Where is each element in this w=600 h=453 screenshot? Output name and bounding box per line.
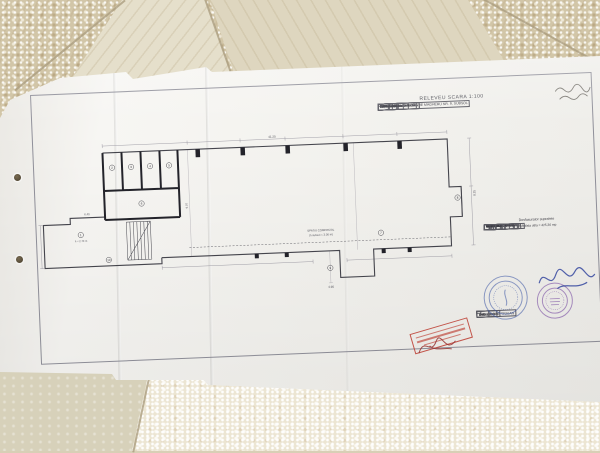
svg-text:9: 9 (329, 266, 331, 270)
page-title: RELEVEU SCARA 1:100 (419, 93, 483, 102)
data-label: Data (476, 310, 489, 318)
uat-value: Sectorul 1 (378, 103, 398, 111)
executant-name: ING. DOBRE TRAIAN (476, 309, 517, 318)
rect-stamp-red (409, 317, 472, 354)
plan-partitions (102, 150, 180, 220)
title-block-empty (476, 311, 481, 314)
cadastral-header-suprafata: Suprafata (378, 103, 397, 111)
legend-total: Suprafata utila = 425,36 mp (483, 221, 591, 229)
svg-text:6.40: 6.40 (84, 212, 90, 216)
carte-funciara-label: Carte Funciara colectiva (378, 102, 420, 111)
cod-unitate-label: Cod unitate individuala (378, 102, 418, 110)
cadastral-header-adresa: Adresa imobilului (378, 102, 409, 110)
svg-text:4.90: 4.90 (328, 285, 334, 289)
svg-text:3: 3 (130, 165, 132, 169)
punch-hole (16, 256, 23, 263)
svg-text:4: 4 (149, 164, 151, 168)
cadastral-table: Nr. cadastral al terenului Suprafata Adr… (378, 95, 584, 103)
legend-table: Nr. Denumire incapere Suprafata utila (m… (484, 220, 590, 224)
paper-fold-crease (205, 60, 214, 411)
svg-text:2: 2 (111, 166, 113, 170)
cadastral-nr-value: 19/-1.1 (378, 103, 393, 110)
plan-walls (40, 138, 464, 289)
plan-piers (195, 141, 411, 261)
cf-individuala-label: CF individuala (378, 103, 404, 111)
svg-text:h = 2.70 m: h = 2.70 m (75, 239, 87, 244)
legend-col-suprafata: Suprafata utila (mp) (484, 223, 515, 230)
paper-fold-crease (341, 60, 350, 411)
cod-unitate-value (378, 104, 382, 107)
punch-hole (14, 174, 21, 181)
svg-text:9.07: 9.07 (185, 202, 189, 208)
floor-plan: 1 2 3 4 5 6 7 8 9 10 SPATIU COMERCIAL (h… (35, 124, 488, 314)
title-block: Executant Data ING. DOBRE TRAIAN Recepti… (476, 307, 572, 311)
svg-text:(h subsol = 3.00 m): (h subsol = 3.00 m) (309, 232, 333, 237)
svg-text:8.25: 8.25 (472, 190, 476, 196)
round-stamp-purple (536, 282, 573, 319)
room-numbers: 1 2 3 4 5 6 7 8 9 10 (75, 151, 463, 281)
cadastral-header-nr: Nr. cadastral al terenului (378, 102, 420, 111)
signature-red (415, 332, 464, 360)
svg-text:1: 1 (80, 233, 82, 237)
svg-text:10: 10 (107, 258, 111, 262)
data2-label: Data (476, 310, 489, 318)
cadastral-adresa-value: B-DUL G-RAL GHEORGHE MAGHERU NR. 9, SUBS… (378, 100, 470, 111)
legend-col-denumire: Denumire incapere (484, 223, 514, 230)
legend-title: Desfasurator suprafete (482, 215, 590, 223)
paper-fold-crease (113, 60, 122, 411)
receptionat-label: Receptionat (476, 310, 500, 318)
legend: Desfasurator suprafete Nr. Denumire inca… (482, 215, 590, 229)
svg-text:5: 5 (168, 163, 170, 167)
signature-blue (537, 267, 600, 298)
plan-annotations: SPATIU COMERCIAL (h subsol = 3.00 m) h =… (71, 126, 480, 299)
svg-text:41.20: 41.20 (268, 135, 276, 139)
drawing-frame: RELEVEU SCARA 1:100 Nr. cadastral al ter… (30, 72, 600, 365)
carte-funciara-value: 1216 (378, 103, 390, 110)
pencil-note (549, 83, 596, 107)
svg-text:SPATIU COMERCIAL: SPATIU COMERCIAL (307, 228, 335, 233)
cadastral-suprafata-value: 425,36 mp (378, 103, 399, 111)
svg-text:7: 7 (380, 231, 382, 235)
dimension-lines (35, 129, 477, 295)
svg-text:6: 6 (141, 202, 143, 206)
round-stamp-blue (483, 275, 529, 321)
legend-col-nr: Nr. (484, 224, 492, 230)
executant-label: Executant (476, 310, 497, 318)
staircase (126, 221, 152, 260)
uat-label: UAT (378, 103, 389, 110)
svg-text:8: 8 (457, 196, 459, 200)
